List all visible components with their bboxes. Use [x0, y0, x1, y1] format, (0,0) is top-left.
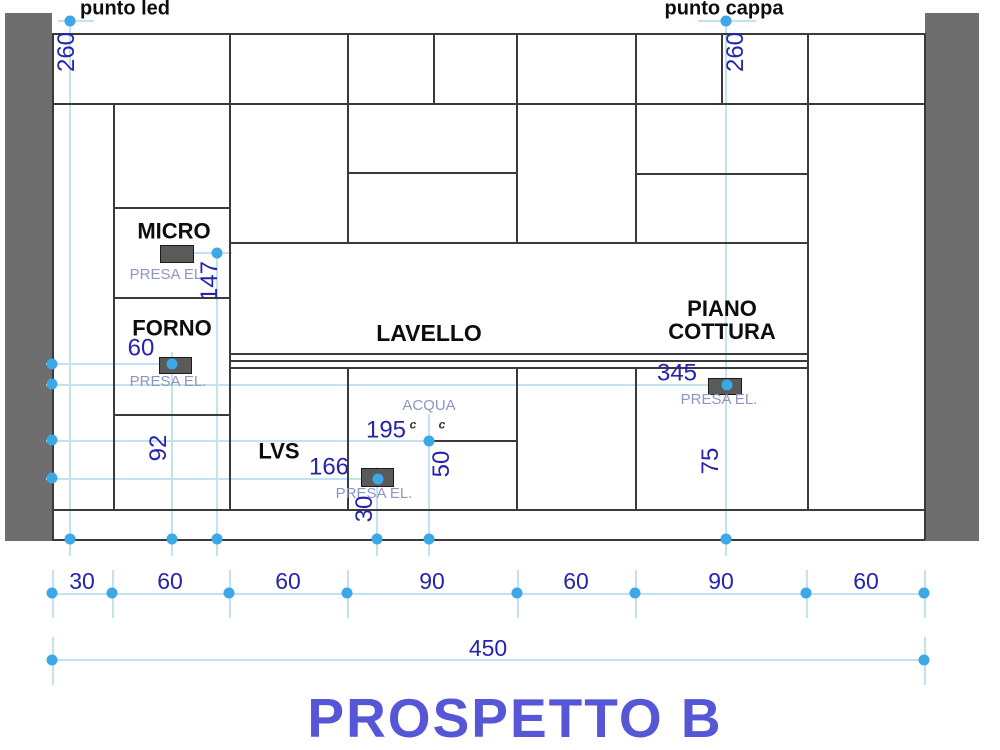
divider-635-base [635, 367, 637, 510]
dim-bottom-90a: 90 [419, 569, 445, 593]
elevation-drawing: punto led punto cappa 260 260 MICRO FORN… [0, 0, 1000, 724]
dim-dot [512, 588, 523, 599]
worktop-mid [229, 360, 807, 362]
micro-presa-marker [212, 248, 223, 259]
plinth-line [52, 509, 925, 511]
wall-left [5, 13, 52, 541]
floor-dot-micro [212, 534, 223, 545]
wall-right [925, 13, 979, 541]
dim-bottom-60d: 60 [853, 569, 879, 593]
dim-75-cottura-presa: 75 [697, 448, 725, 475]
wall-edge-left [52, 33, 54, 540]
water-symbol-left: c [410, 419, 417, 432]
worktop-bottom [229, 367, 807, 369]
dim-chain-line [52, 593, 924, 595]
acqua-ref-line [429, 440, 517, 442]
shelf-line-left [347, 172, 516, 174]
dim-bottom-60a: 60 [157, 569, 183, 593]
wall-dot-1 [47, 359, 58, 370]
divider-516-base [516, 367, 518, 510]
wall-dot-4 [47, 473, 58, 484]
guide-forno-presa [46, 363, 174, 365]
ceiling-line [52, 33, 926, 35]
lvs-presa-marker [373, 474, 384, 485]
dim-260-cappa: 260 [722, 32, 750, 72]
dim-bottom-30: 30 [69, 569, 95, 593]
column-right-tall-edge [807, 33, 809, 510]
punto-cappa-label: punto cappa [665, 0, 784, 20]
dim-345-cottura-presa: 345 [657, 360, 697, 385]
socket-micro [160, 245, 194, 263]
dim-60-forno-presa: 60 [128, 335, 155, 360]
soffit-line [52, 103, 926, 105]
dim-50-acqua: 50 [428, 451, 456, 478]
floor-dot-led [65, 534, 76, 545]
dim-195-acqua: 195 [366, 417, 406, 442]
punto-led-label: punto led [80, 0, 170, 20]
dim-dot [919, 588, 930, 599]
dim-bottom-60b: 60 [275, 569, 301, 593]
lvs-label: LVS [258, 439, 299, 462]
dim-260-led: 260 [53, 32, 81, 72]
forno-niche-bottom [113, 414, 231, 416]
dim-30-lvs-presa: 30 [351, 496, 379, 523]
divider-516-upper [516, 33, 518, 242]
dim-dot [342, 588, 353, 599]
dim-dot [224, 588, 235, 599]
worktop-top [229, 353, 807, 355]
presa-label-micro: PRESA EL. [130, 267, 207, 283]
dim-166-lvs-presa: 166 [309, 454, 349, 479]
dim-dot [47, 655, 58, 666]
wall-dot-2 [47, 379, 58, 390]
wall-edge-right [924, 33, 926, 540]
dim-bottom-90b: 90 [708, 569, 734, 593]
dim-92-forno-presa: 92 [145, 435, 173, 462]
divider-433-top [433, 33, 435, 104]
floor-line [52, 539, 925, 541]
column-left-edge [113, 103, 115, 510]
floor-dot-cappa [721, 534, 732, 545]
axis-punto-led [69, 21, 71, 556]
dim-dot [107, 588, 118, 599]
punto-led-marker [65, 16, 76, 27]
forno-presa-marker [167, 359, 178, 370]
divider-635-upper [635, 33, 637, 242]
acqua-marker [424, 436, 435, 447]
dim-dot [630, 588, 641, 599]
wall-dot-3 [47, 435, 58, 446]
micro-niche-top [113, 207, 231, 209]
micro-label: MICRO [137, 219, 210, 242]
dim-total-450: 450 [469, 636, 507, 660]
dim-dot [919, 655, 930, 666]
drawing-title: PROSPETTO B [307, 686, 722, 750]
floor-dot-acqua [424, 534, 435, 545]
dim-bottom-60c: 60 [563, 569, 589, 593]
floor-dot-lvs [372, 534, 383, 545]
piano-cottura-label: PIANO COTTURA [657, 297, 787, 343]
cottura-presa-marker [722, 380, 733, 391]
lavello-label: LAVELLO [376, 321, 482, 345]
leader-punto-led [58, 20, 94, 22]
upper-cabinet-bottom [229, 242, 807, 244]
dim-147-micro-presa: 147 [196, 261, 224, 301]
acqua-label: ACQUA [402, 398, 455, 414]
water-symbol-right: c [439, 419, 446, 432]
dim-dot [47, 588, 58, 599]
presa-label-cottura: PRESA EL. [681, 392, 758, 408]
presa-label-forno: PRESA EL. [130, 374, 207, 390]
dim-dot [801, 588, 812, 599]
floor-dot-forno [167, 534, 178, 545]
divider-347-upper [347, 33, 349, 242]
axis-punto-cappa [725, 21, 727, 556]
column-right-edge [229, 33, 231, 510]
shelf-line-right [635, 173, 807, 175]
